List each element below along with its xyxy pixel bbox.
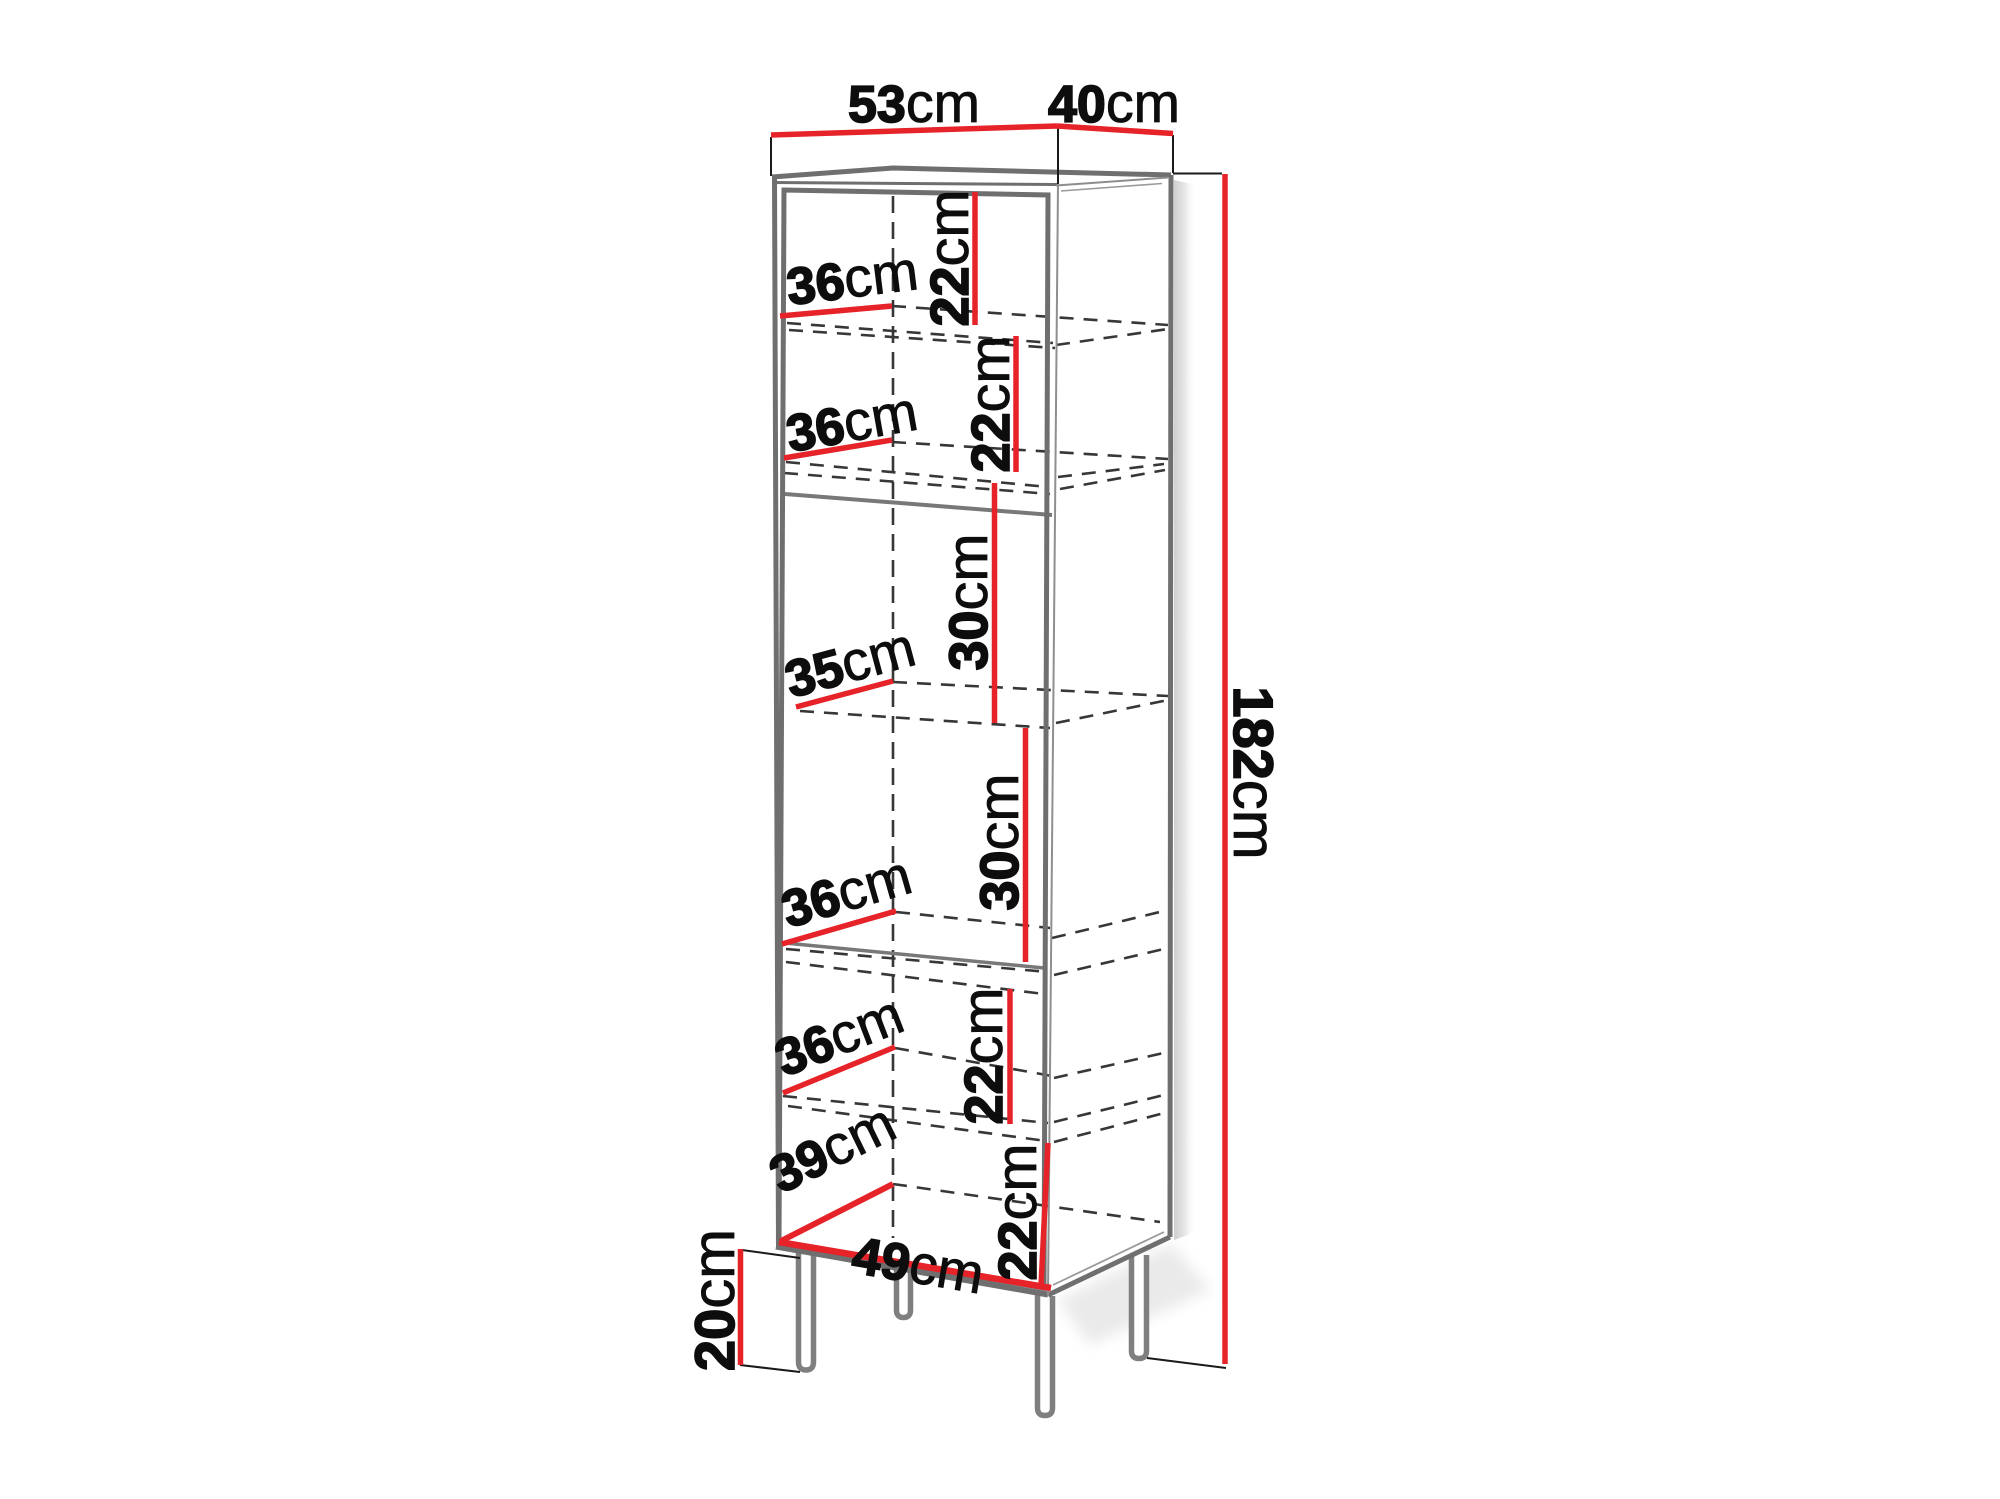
svg-text:30cm: 30cm: [967, 773, 1031, 910]
svg-text:40cm: 40cm: [1048, 72, 1180, 134]
svg-text:53cm: 53cm: [848, 72, 980, 134]
svg-text:30cm: 30cm: [936, 533, 1000, 670]
svg-text:22cm: 22cm: [917, 189, 981, 326]
svg-text:22cm: 22cm: [958, 335, 1022, 472]
svg-text:182cm: 182cm: [1221, 686, 1288, 859]
svg-text:22cm: 22cm: [985, 1143, 1049, 1280]
svg-text:22cm: 22cm: [951, 987, 1015, 1124]
svg-text:20cm: 20cm: [680, 1229, 747, 1371]
